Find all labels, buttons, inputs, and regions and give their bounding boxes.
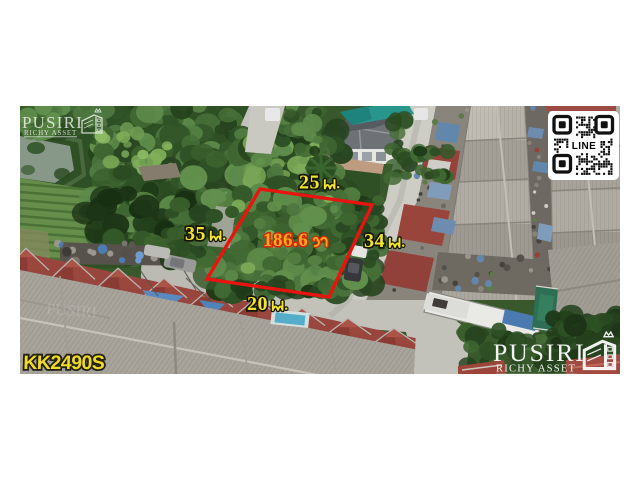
svg-text:PUSIRI: PUSIRI [46, 301, 98, 321]
svg-text:RICHY ASSET: RICHY ASSET [496, 363, 576, 374]
svg-text:186.6: 186.6 [263, 230, 308, 251]
svg-text:34: 34 [364, 230, 385, 252]
svg-text:35: 35 [185, 223, 206, 245]
svg-text:RICHY ASSET: RICHY ASSET [24, 129, 77, 137]
svg-text:20: 20 [247, 293, 268, 315]
svg-text:LINE: LINE [572, 141, 596, 152]
svg-text:25: 25 [299, 172, 320, 194]
svg-text:KK2490S: KK2490S [23, 352, 105, 374]
